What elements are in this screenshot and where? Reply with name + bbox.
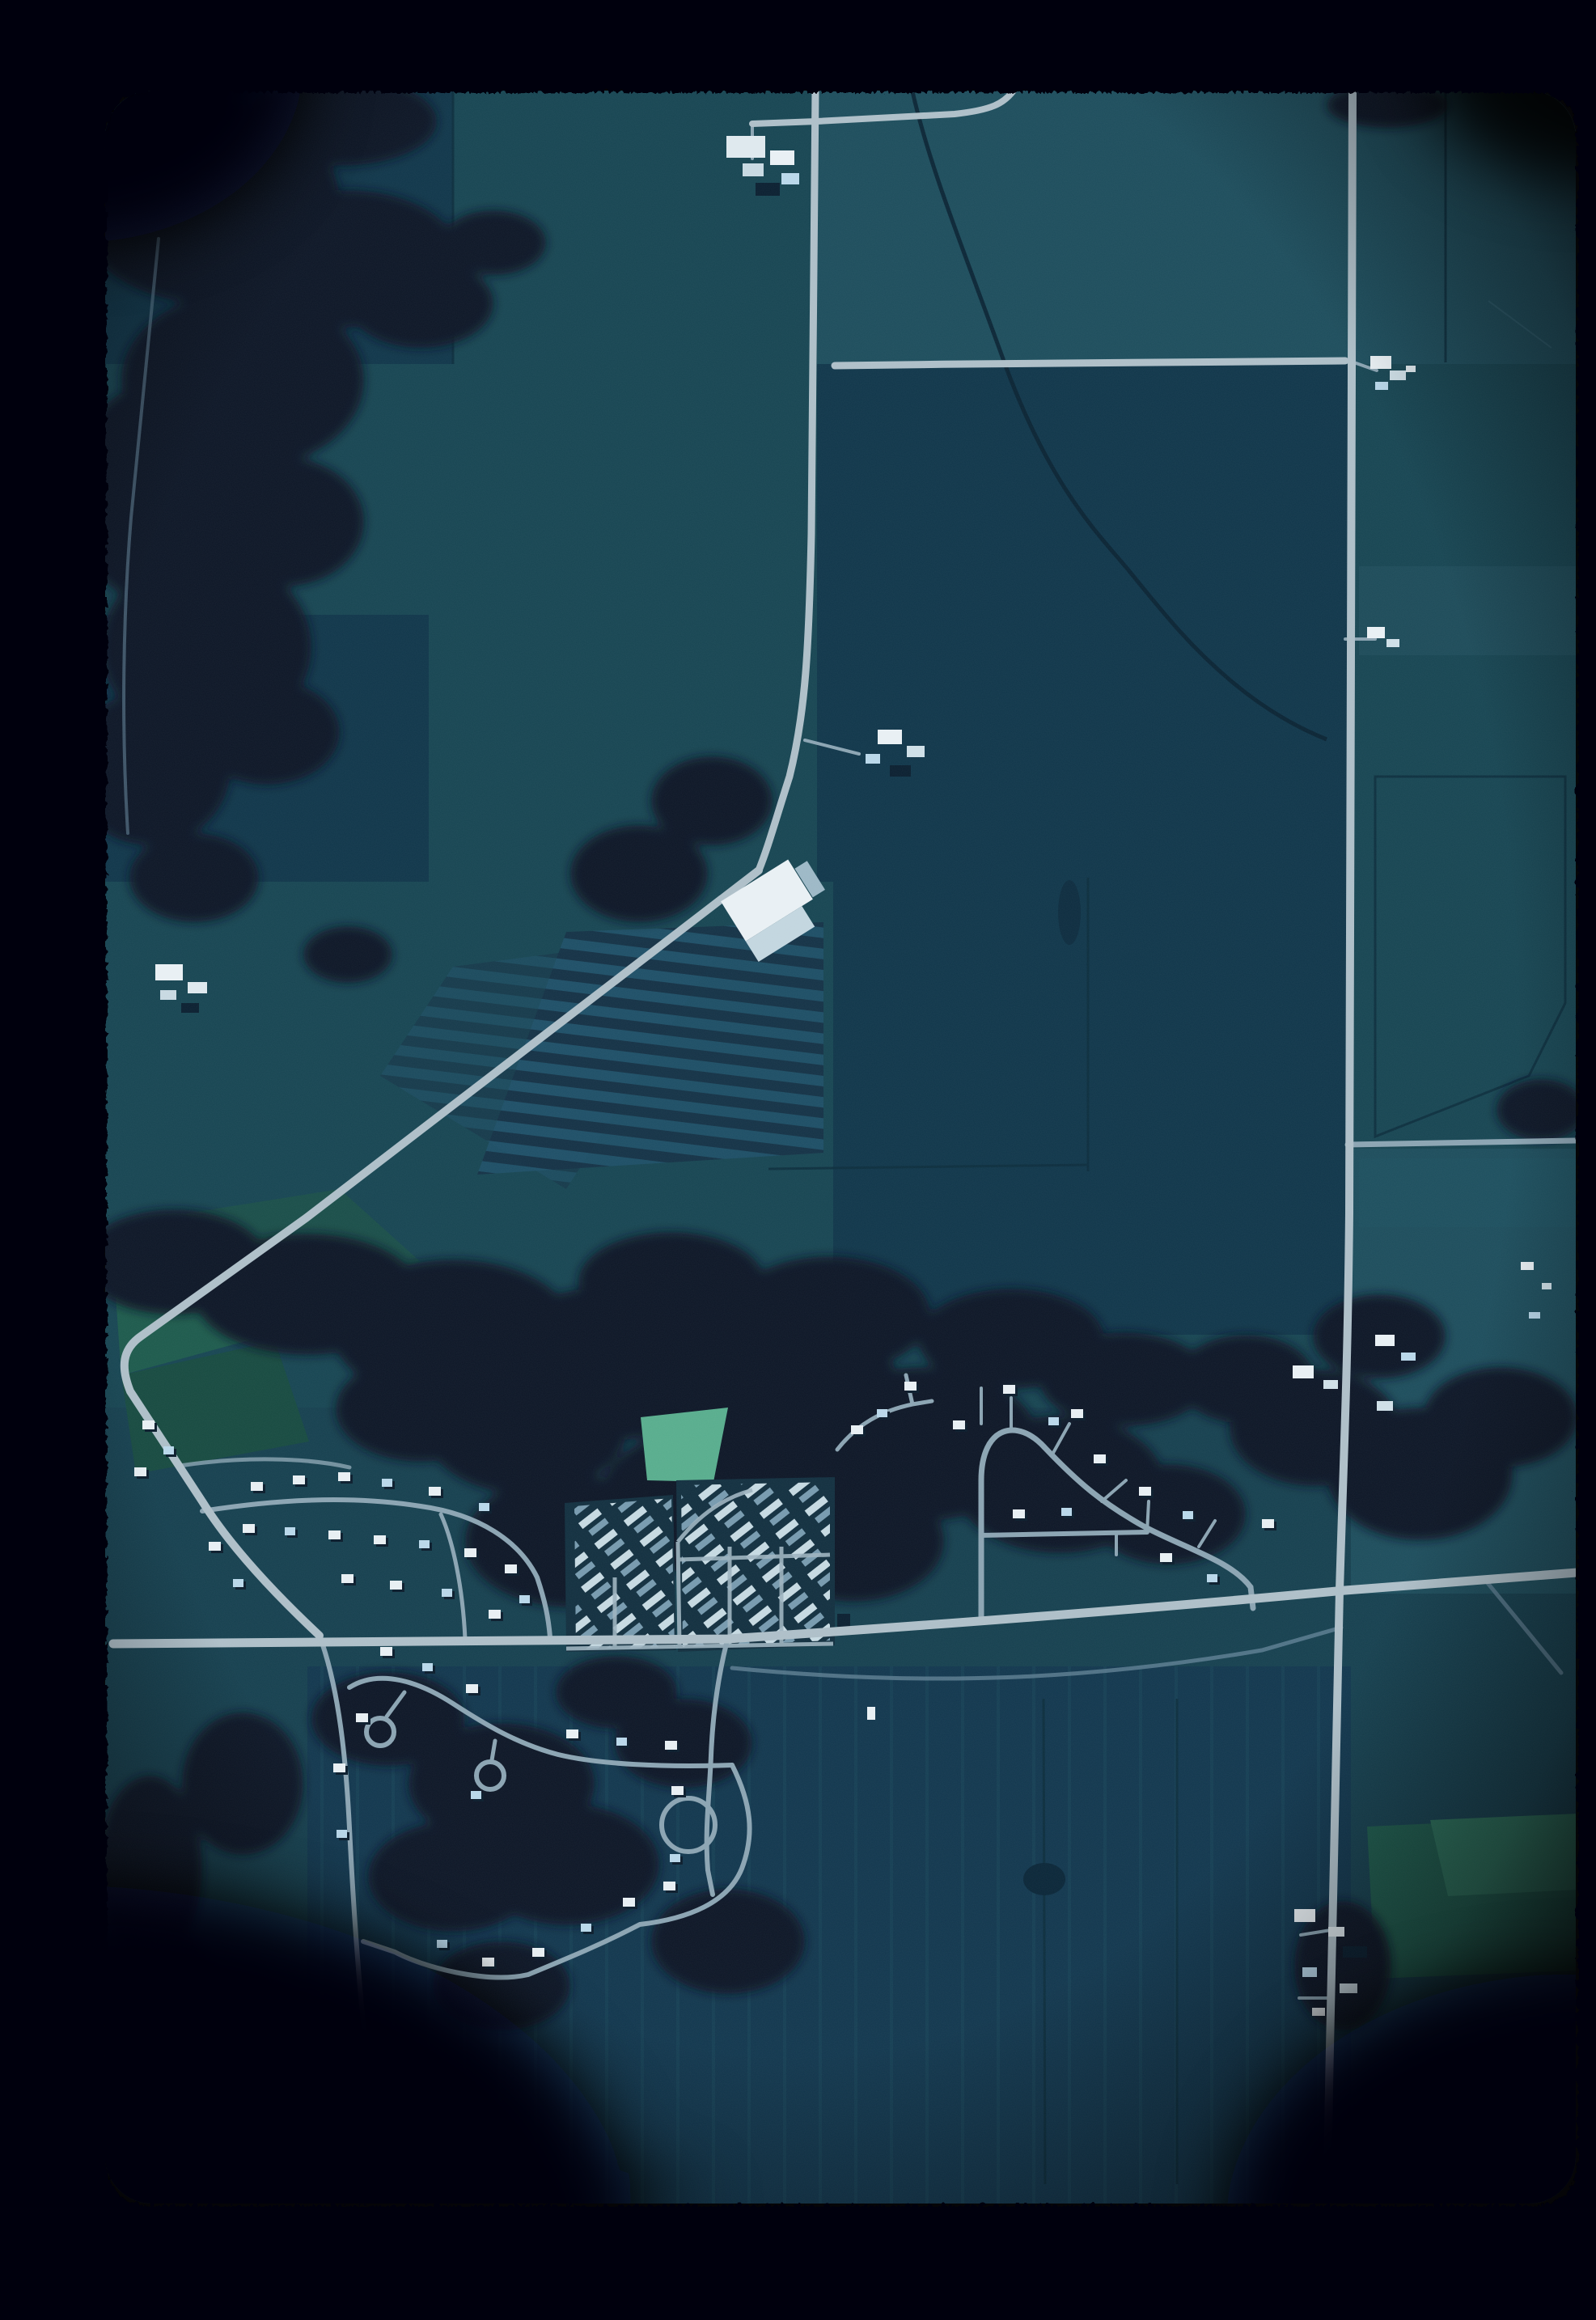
film-slide: [0, 0, 1596, 2320]
aerial-photo: [0, 0, 1596, 2320]
aerial-photo-svg: [0, 0, 1596, 2320]
vignette: [105, 91, 1576, 2204]
